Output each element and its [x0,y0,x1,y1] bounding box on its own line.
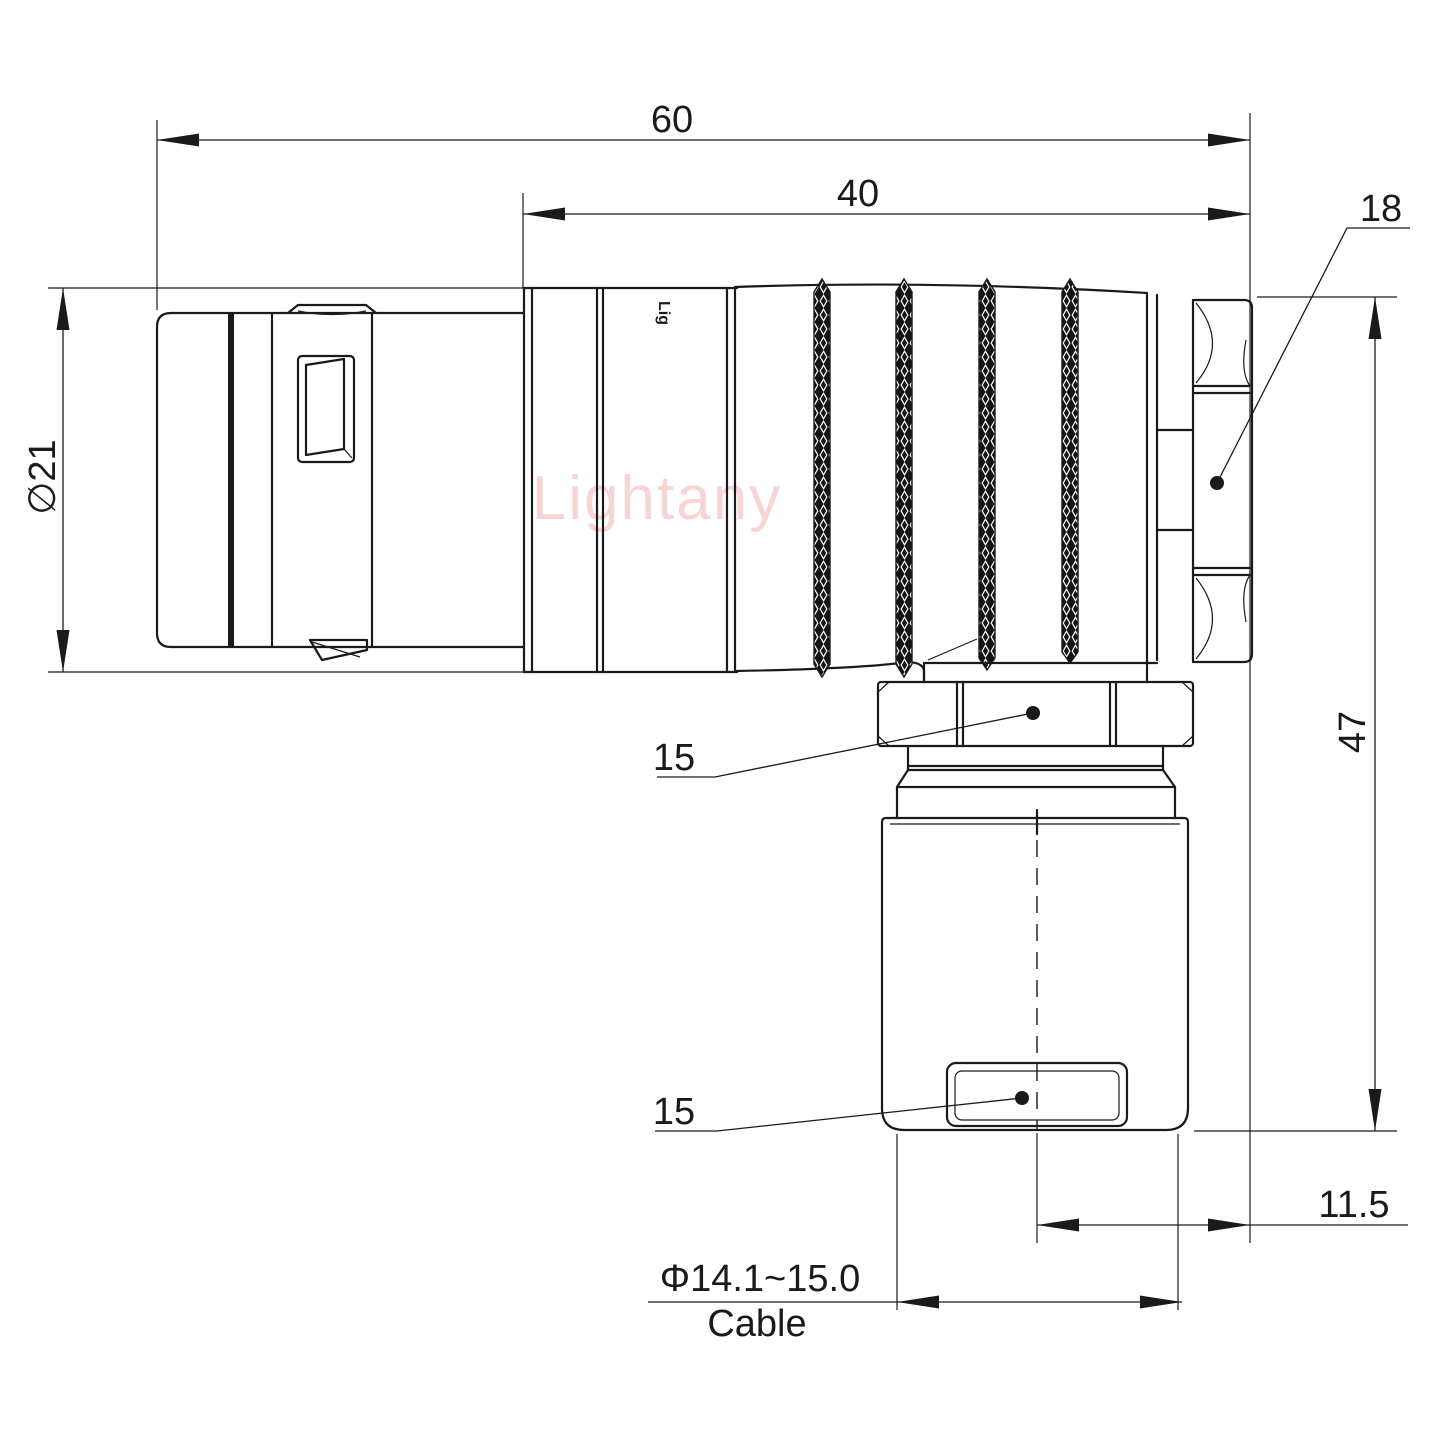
knurled-section [735,279,1157,682]
knurl-band [814,279,830,677]
watermark-text: Lightany [532,464,782,533]
dim-40-label: 40 [837,173,879,215]
dimension-overall-height: 47 [1332,297,1382,1131]
dim-15-upper-label: 15 [653,737,695,779]
dim-11-5-label: 11.5 [1318,1184,1389,1226]
dimension-cable-diameter: Φ14.1~15.0 Cable [648,1258,1182,1345]
elbow-leg [924,663,1157,682]
front-shell-groove [228,313,234,647]
dim-phi21-label: ∅21 [22,439,64,514]
cable-gland [882,810,1188,1130]
dim-18-label: 18 [1360,188,1402,230]
technical-drawing-connector-right-angle: Lightany [0,0,1440,1440]
dim-cable-word-label: Cable [707,1303,806,1345]
engraved-logo-text: Lig [655,301,672,325]
leader-coupling-nut-15: 15 [653,706,1040,779]
dimension-overall-length: 60 [157,99,1250,147]
dim-15-lower-label: 15 [653,1091,695,1133]
dimension-axis-offset: 11.5 [1037,1184,1408,1232]
knurl-band [979,279,995,670]
dimension-annotations: 60 40 ∅21 18 15 [22,99,1410,1345]
front-plug-shell [157,305,524,660]
dim-47-label: 47 [1332,711,1374,753]
dim-cable-range-label: Φ14.1~15.0 [660,1258,860,1300]
drawing-canvas: Lightany [0,0,1440,1440]
gland-neck [897,746,1175,818]
dim-60-label: 60 [651,99,693,141]
dimension-rear-body-length: 40 [523,173,1250,221]
rear-backnut [1157,300,1252,662]
latch-window-front [298,356,354,462]
connector-body: Lig [157,279,1252,1130]
latch-tab-bottom [310,640,367,660]
dimension-plug-diameter: ∅21 [22,288,70,672]
knurl-band [896,279,912,677]
knurl-band [1062,279,1078,663]
